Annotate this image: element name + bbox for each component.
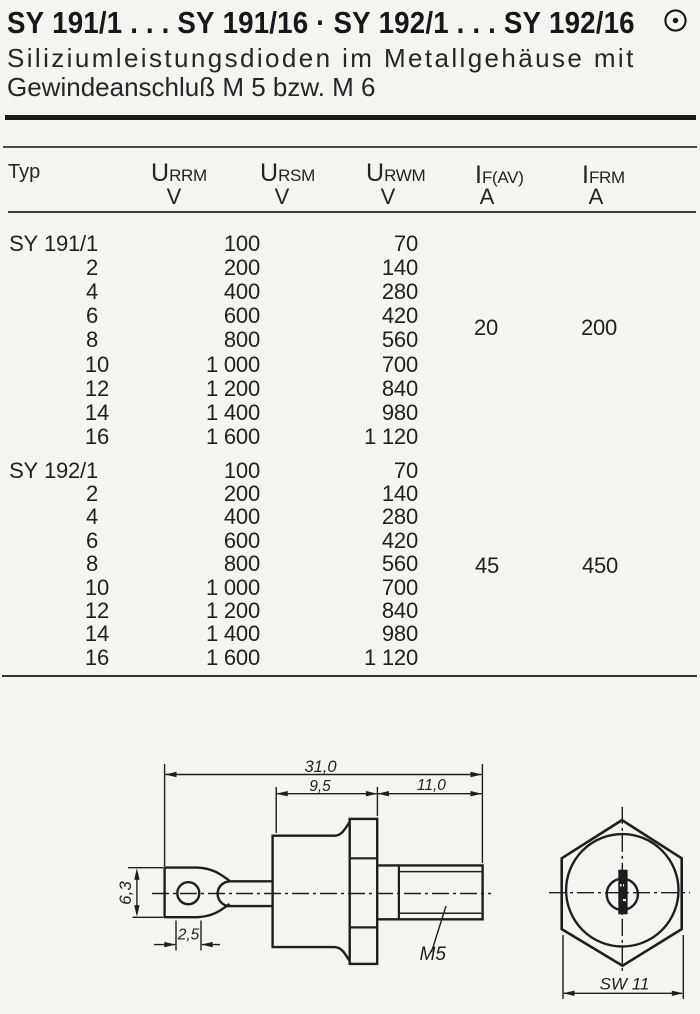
svg-text:31,0: 31,0 (304, 758, 337, 776)
svg-text:11,0: 11,0 (417, 777, 446, 794)
svg-text:9,5: 9,5 (309, 778, 331, 795)
svg-text:M5: M5 (420, 944, 447, 965)
svg-text:SW 11: SW 11 (600, 975, 650, 994)
svg-text:2,5: 2,5 (177, 927, 200, 944)
svg-text:6,3: 6,3 (116, 881, 135, 905)
